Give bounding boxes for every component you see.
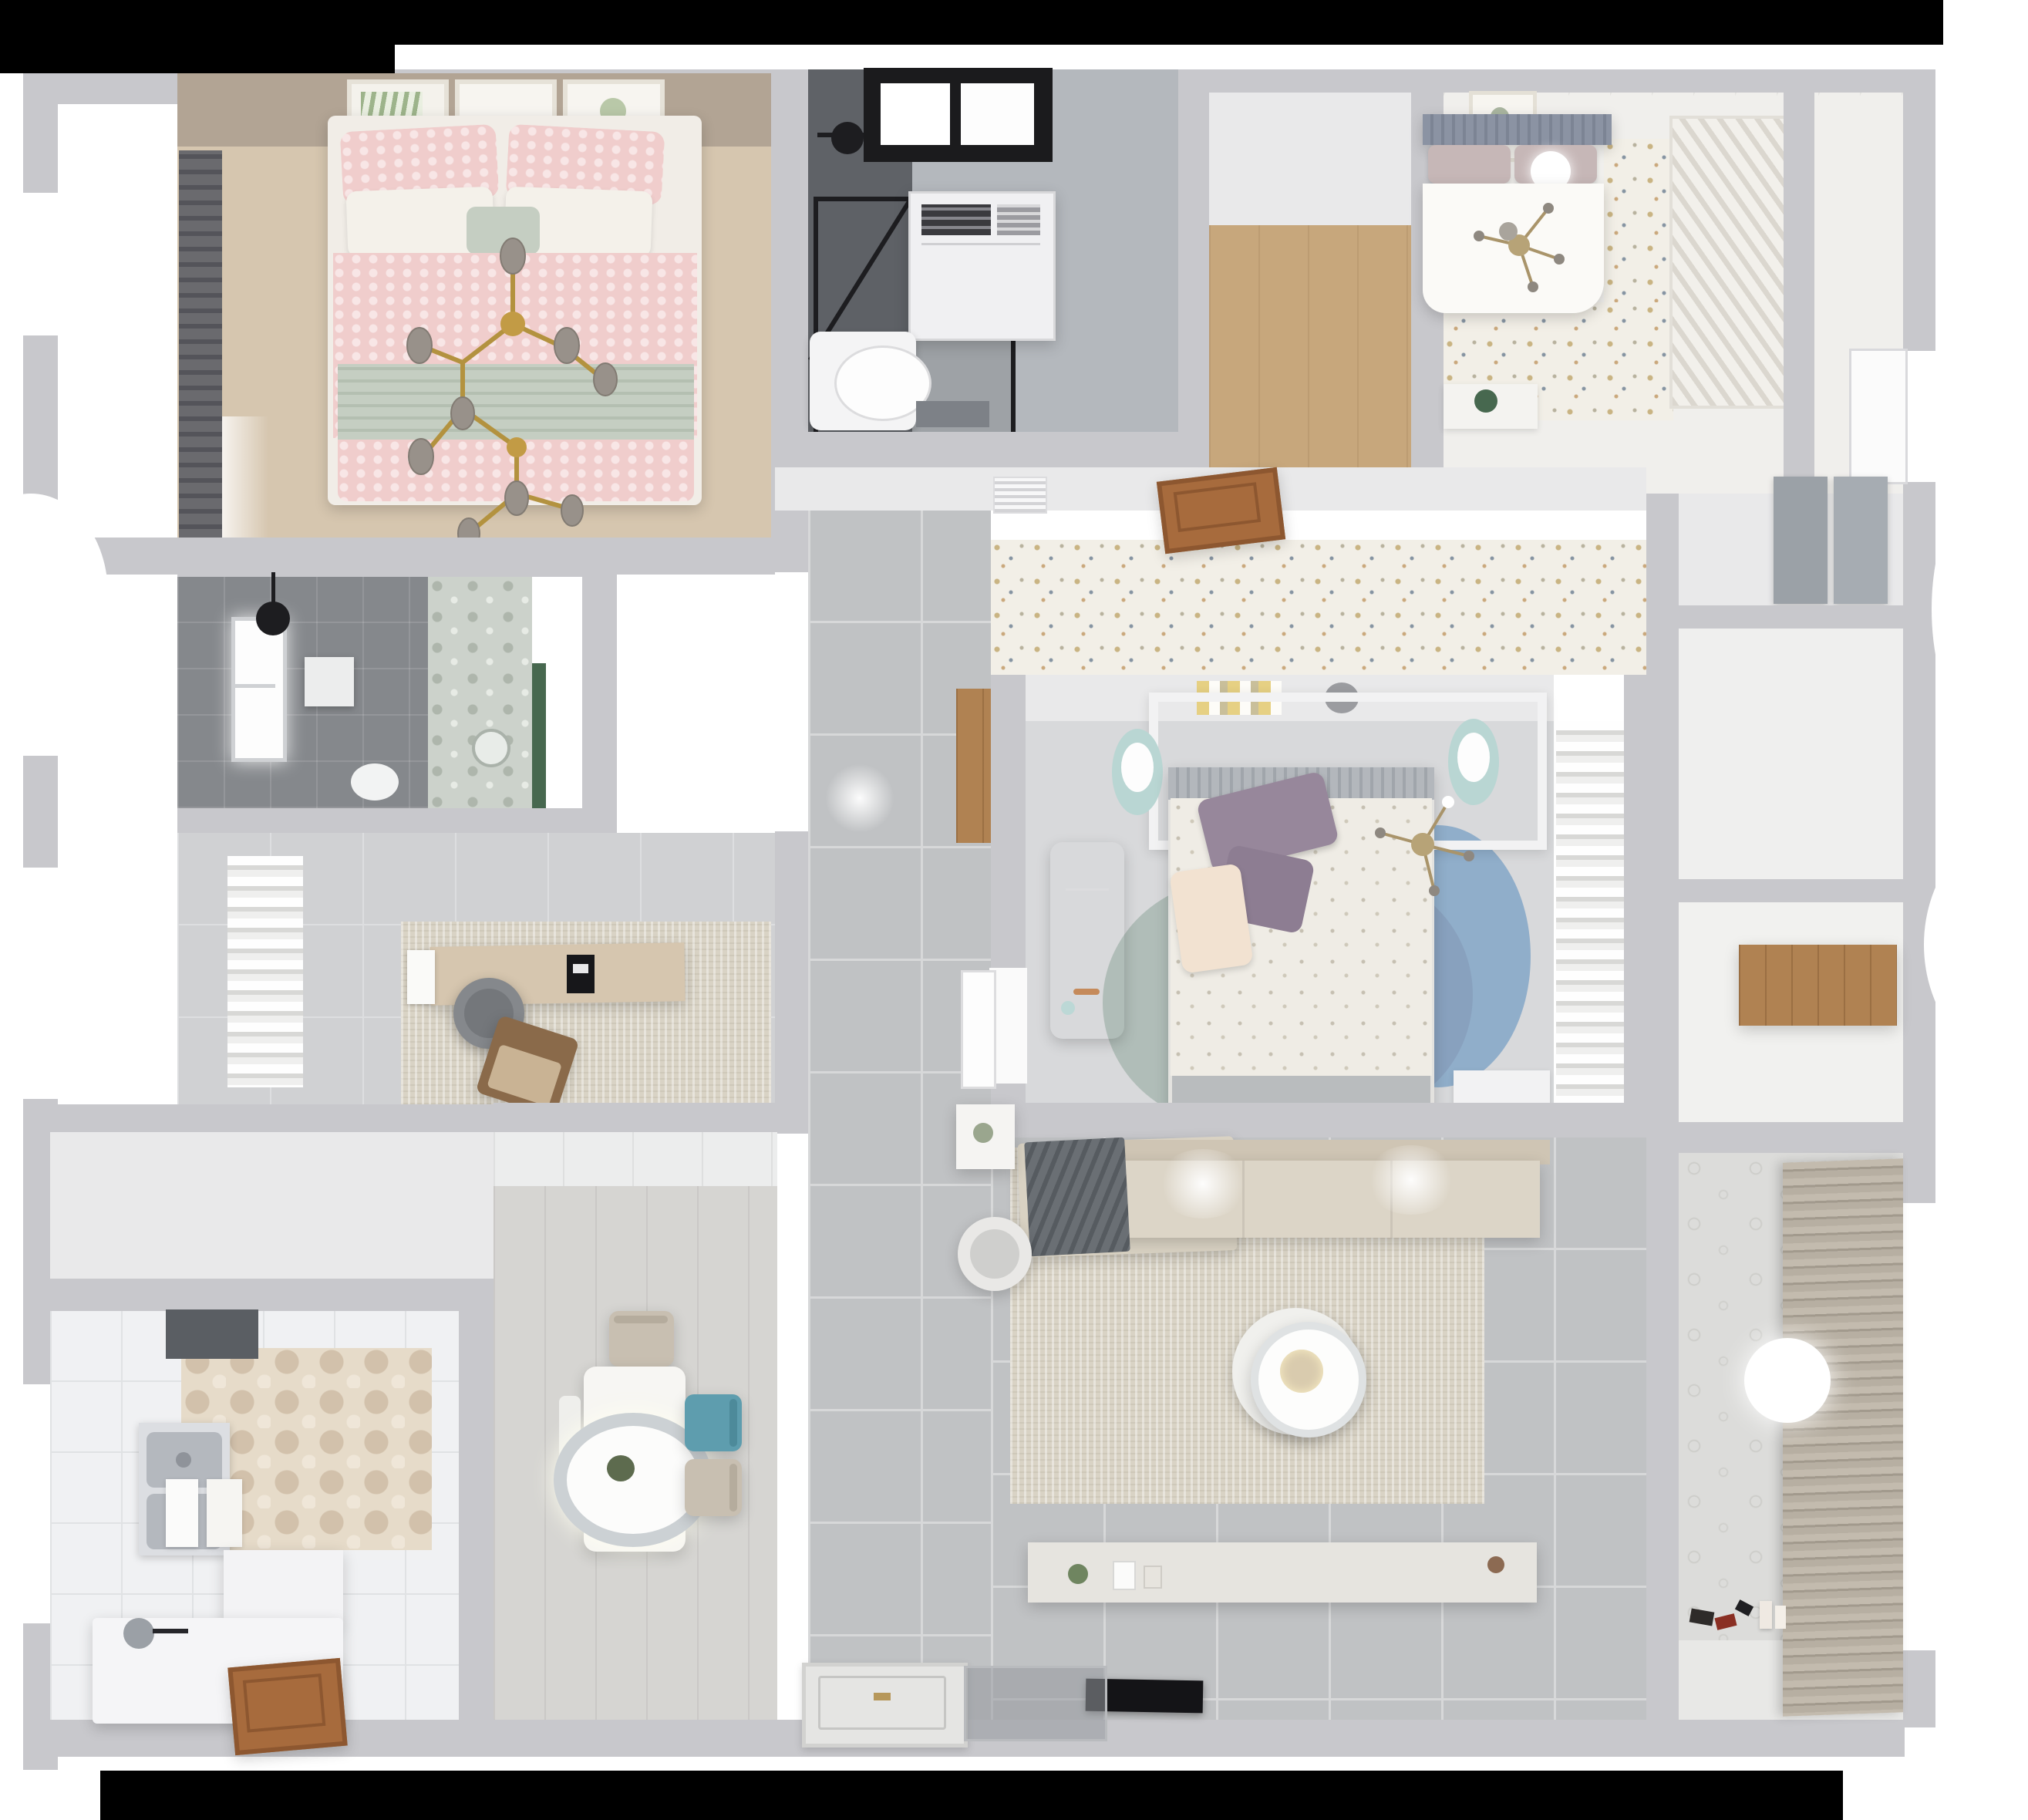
open-wood-door — [1157, 467, 1285, 554]
bedroom2-plant — [1474, 389, 1497, 413]
kitchen-upper-wall-mass — [50, 1132, 494, 1279]
kitchen-door-panel — [243, 1673, 326, 1733]
console-box — [1144, 1566, 1162, 1589]
study-right-wall — [775, 831, 808, 1134]
floorplan-render — [0, 0, 2028, 1820]
bedroom2-headboard — [1423, 114, 1612, 145]
hallway-ceiling-light — [825, 763, 894, 833]
right-divider-2 — [1679, 879, 1903, 902]
chair-top-back — [614, 1316, 668, 1323]
dining-chair-teal — [685, 1394, 742, 1451]
pendant-plant — [607, 1455, 635, 1481]
study-monitor — [567, 955, 595, 993]
mask-top-left-block — [0, 0, 395, 73]
mask-right-blob-2 — [1924, 817, 2028, 1072]
bedroom1-curtain — [179, 150, 222, 571]
washer-panel — [997, 204, 1040, 235]
master-stool-left — [1112, 729, 1163, 815]
window-break-laundry — [1902, 1203, 1937, 1650]
bathroom1-window-frame — [864, 68, 1053, 162]
ac-vent — [993, 477, 1047, 514]
kitchen-faucet-base — [123, 1618, 154, 1649]
master-door-leaf — [961, 970, 996, 1089]
washer-cabinet — [908, 191, 1056, 341]
entry-wood-floor — [1209, 225, 1411, 480]
bathroom1-window-pane-1 — [881, 83, 950, 145]
bedroom2-pillow-left — [1428, 145, 1511, 184]
bathroom2-window — [231, 617, 287, 762]
branch-chandelier — [370, 231, 648, 555]
bottle-1 — [1760, 1601, 1772, 1629]
tv-console — [1028, 1542, 1537, 1603]
bedroom2-cross-lamp — [1465, 191, 1573, 299]
living-spotlight-2 — [1365, 1145, 1457, 1215]
window-break-study — [22, 868, 59, 1099]
front-door-handle — [874, 1693, 891, 1700]
study-curtain — [227, 856, 303, 1087]
bedroom2-right-wall — [1784, 93, 1814, 497]
mask-bottom-band — [100, 1771, 1843, 1820]
master-nightstand — [1454, 1070, 1550, 1107]
lounge-chair-cushion — [487, 1044, 562, 1107]
monitor-screen-glare — [573, 964, 588, 973]
washer-seam — [921, 243, 1040, 245]
front-glass-panel — [964, 1666, 1107, 1741]
console-plant — [1068, 1564, 1088, 1584]
master-bottom-wall — [991, 1103, 1650, 1137]
right-door-leaf — [1849, 349, 1908, 484]
coffee-table-center — [1280, 1350, 1323, 1393]
side-table-plant — [973, 1123, 993, 1143]
door-panel — [1174, 482, 1262, 532]
armchair-seat — [970, 1229, 1019, 1279]
closet-gray-panel-1 — [1774, 477, 1828, 604]
bathroom1-window-pane-2 — [961, 83, 1034, 145]
stool-left-top — [1121, 743, 1154, 792]
bathroom2-round-mirror — [472, 729, 510, 767]
shower-arm — [817, 133, 864, 137]
desk-teal-cup — [1061, 1001, 1075, 1015]
dining-top-wall — [494, 1103, 777, 1132]
right-divider-1 — [1679, 605, 1903, 629]
bathroom2-shower-head — [256, 602, 290, 635]
cutting-board-2 — [207, 1479, 242, 1547]
white-room — [1679, 629, 1903, 879]
coffee-table-ring — [1251, 1322, 1366, 1437]
kitchen-wood-door — [227, 1658, 347, 1755]
dining-chair-top — [609, 1311, 674, 1367]
sink-drain-1 — [176, 1452, 191, 1468]
chair-teal-back — [729, 1399, 737, 1447]
console-ornament — [1487, 1556, 1504, 1573]
kitchen-faucet-spout — [153, 1629, 188, 1633]
bathroom2-top-wall — [177, 554, 586, 577]
washer-controls — [921, 204, 991, 235]
bathroom2-toilet — [351, 763, 399, 800]
laundry-ceiling-light — [1744, 1338, 1831, 1423]
console-frame-small — [1113, 1561, 1136, 1590]
study-bottom-wall — [50, 1104, 501, 1132]
bath-mat — [916, 401, 989, 427]
closet-gray-panel-2 — [1834, 477, 1888, 604]
bathroom2-window-mullion — [235, 684, 275, 688]
right-column-left-wall — [1646, 494, 1679, 1721]
right-divider-3 — [1679, 1122, 1903, 1153]
kitchen-top-wall — [50, 1279, 494, 1311]
chair-beige-2-back — [729, 1464, 737, 1512]
mask-top-right-white — [1943, 0, 2028, 324]
desk-drawer-line — [1066, 888, 1109, 891]
mask-left-blob — [0, 494, 108, 694]
bottle-2 — [1775, 1606, 1786, 1629]
mask-left-margin — [0, 73, 23, 1820]
kitchen-dining-wall — [459, 1311, 494, 1720]
master-curtain — [1556, 721, 1624, 1107]
front-door-molding — [818, 1676, 946, 1730]
stool-right-top — [1457, 733, 1490, 782]
front-door-leaf — [802, 1663, 968, 1748]
bathroom2-floral-wall — [428, 577, 532, 810]
kitchen-counter-vertical — [224, 1550, 343, 1624]
storage-wood-shelf — [1739, 945, 1897, 1026]
master-desk — [1050, 842, 1124, 1039]
shower-head — [831, 122, 864, 154]
mask-right-blob-1 — [1932, 447, 2028, 771]
bathroom2-shelf-box — [305, 657, 354, 706]
window-break-bedroom1 — [22, 193, 59, 335]
dining-closet — [494, 1132, 777, 1186]
living-spotlight-1 — [1157, 1149, 1249, 1218]
bedroom2-south-wall-wallpaper — [991, 540, 1646, 675]
armchair — [958, 1217, 1032, 1291]
master-cross-lamp — [1357, 779, 1488, 910]
cutting-board-1 — [166, 1479, 198, 1547]
dining-chair-beige-2 — [685, 1459, 742, 1516]
master-pillow-cream — [1169, 863, 1253, 974]
bedroom1-window-light — [222, 416, 268, 540]
study-paper — [407, 950, 435, 1004]
bathroom2-right-wall — [582, 554, 617, 831]
living-side-table — [956, 1104, 1015, 1169]
sofa-gray-blanket — [1024, 1137, 1130, 1257]
laundry-roman-blinds — [1783, 1158, 1903, 1716]
bathroom1-bottom-wall — [775, 432, 1180, 467]
range-hood — [166, 1309, 258, 1359]
bedroom2-louver-wardrobe — [1669, 116, 1790, 409]
bathroom2-green-strip — [532, 663, 546, 810]
entry-upper-wall — [1209, 93, 1411, 225]
bathroom1-right-wall — [1178, 69, 1209, 503]
desk-copper-handle — [1073, 989, 1100, 995]
bathroom2-bottom-wall — [177, 808, 617, 833]
